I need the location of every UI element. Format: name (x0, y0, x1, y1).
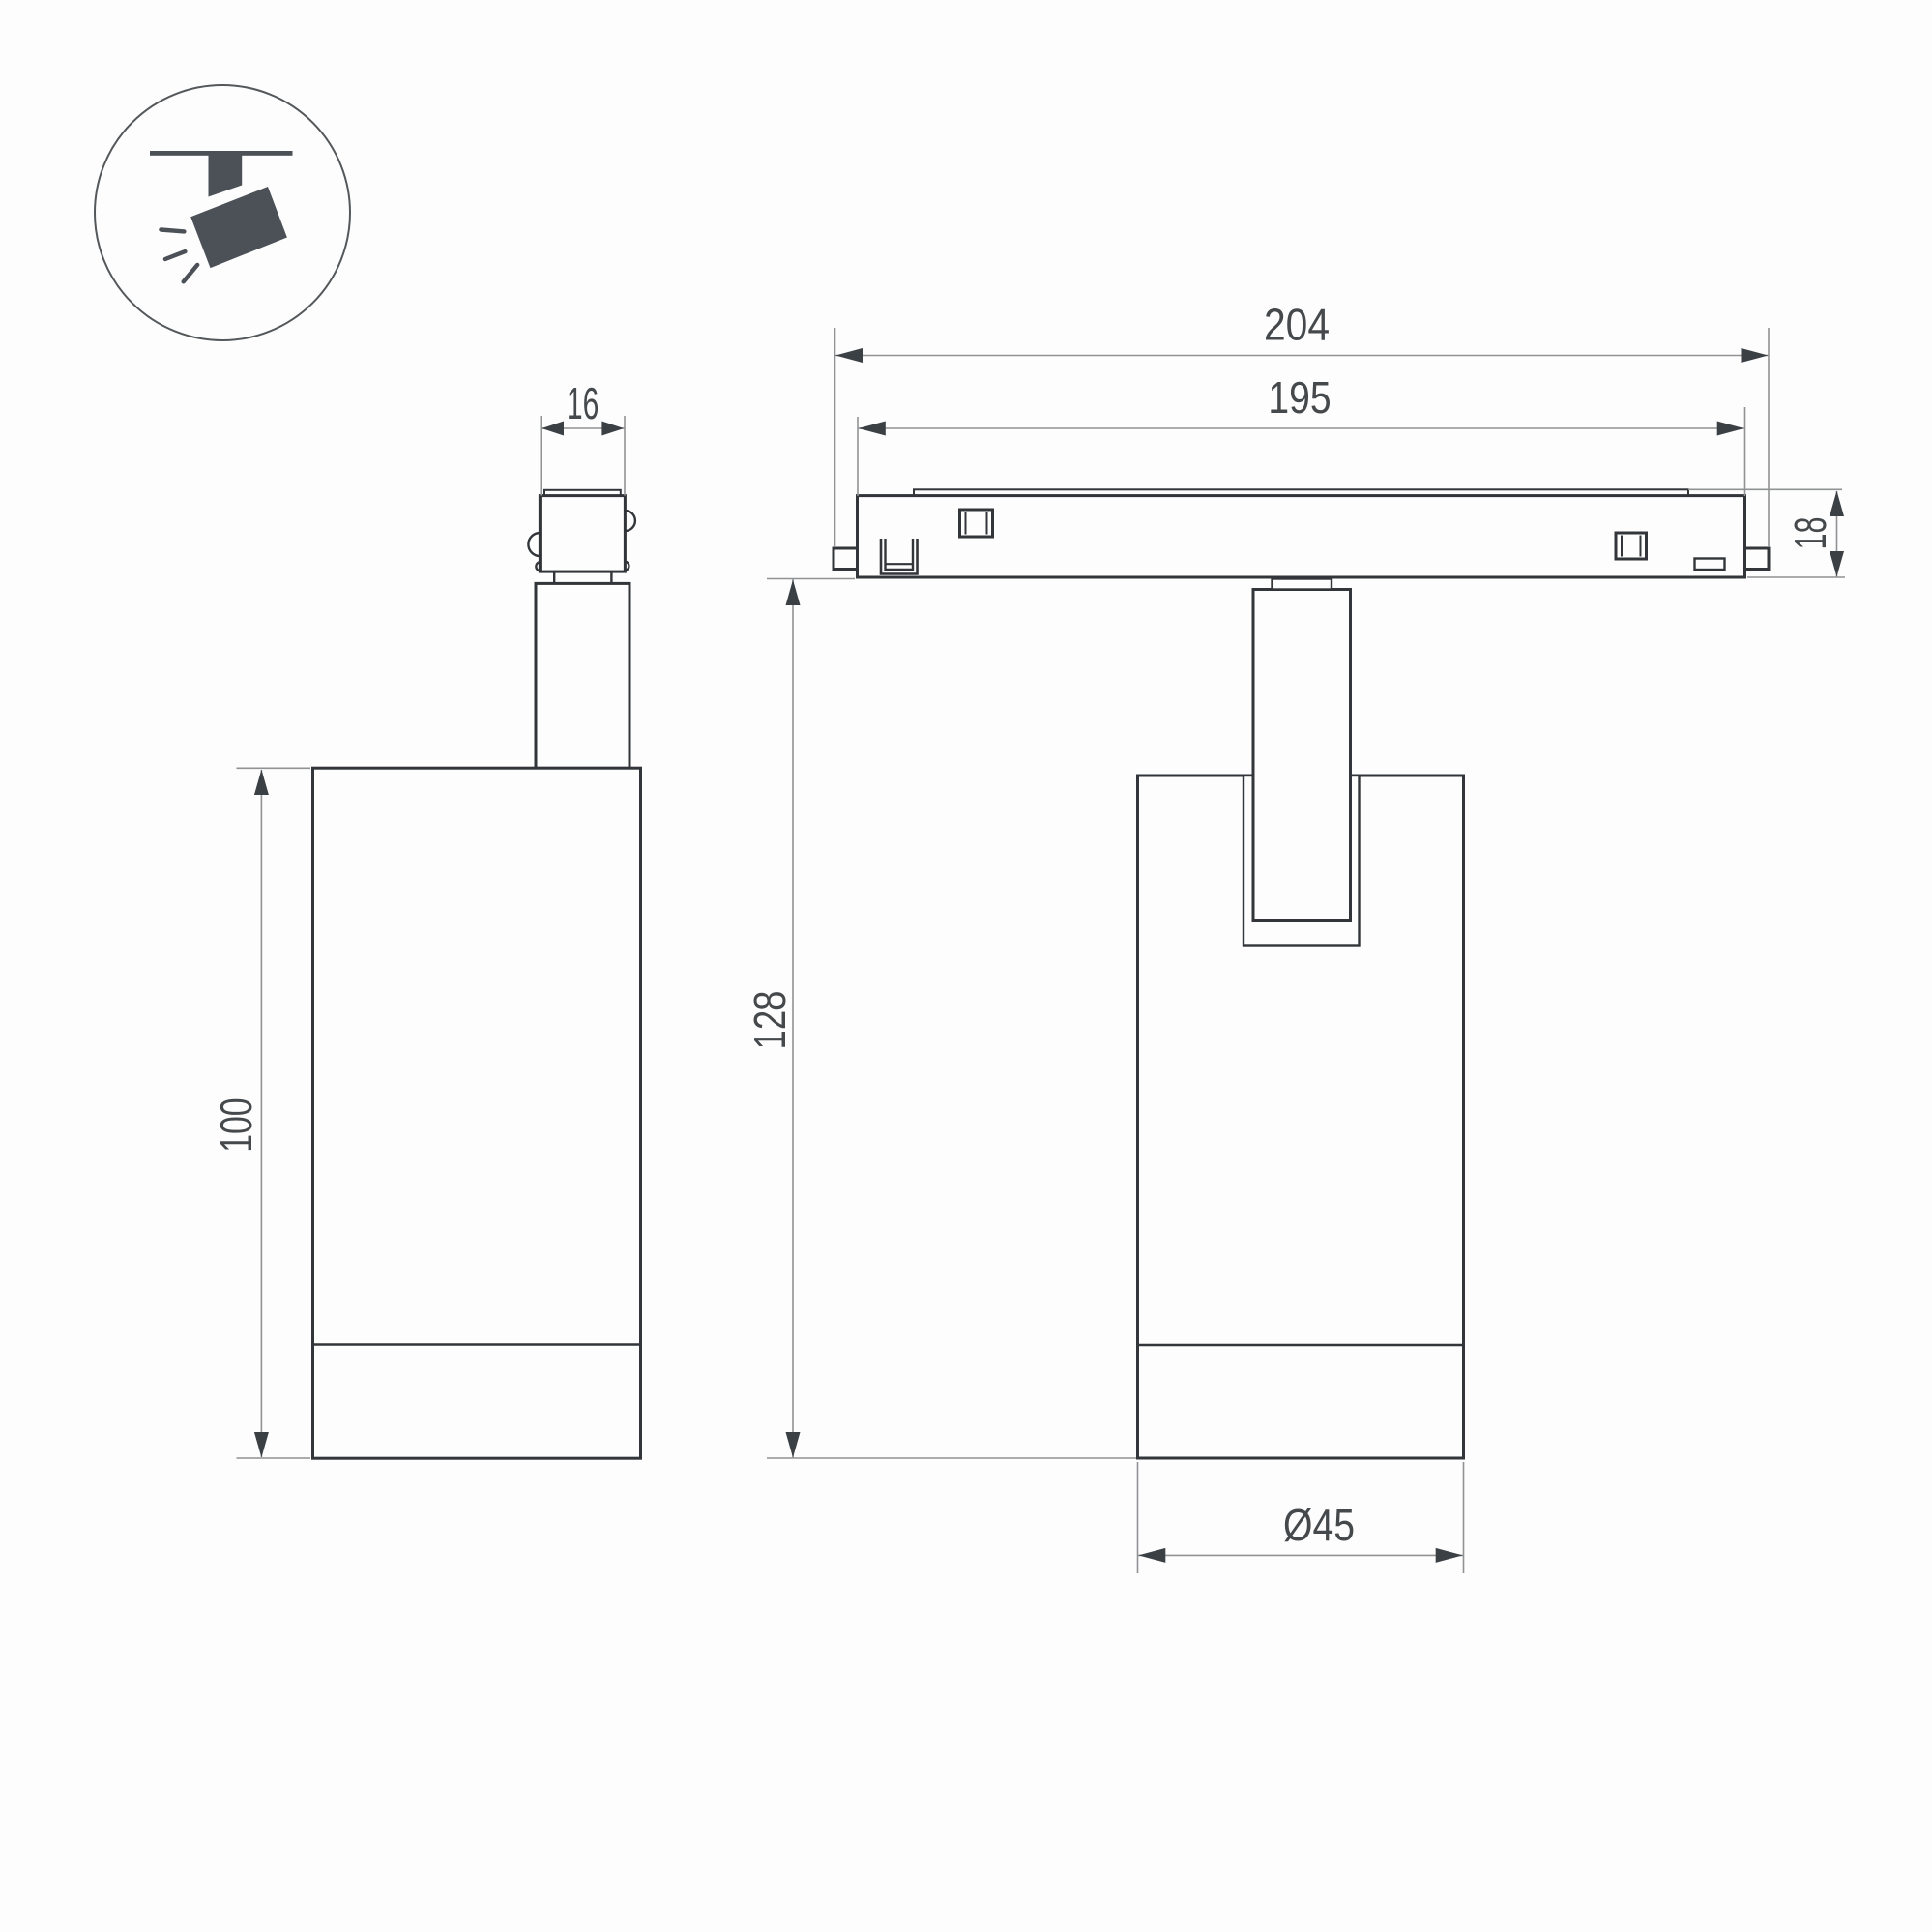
svg-text:204: 204 (1264, 299, 1330, 349)
svg-text:128: 128 (745, 991, 795, 1050)
svg-text:100: 100 (211, 1098, 261, 1152)
svg-text:18: 18 (1785, 517, 1835, 550)
svg-text:195: 195 (1268, 372, 1331, 423)
svg-text:Ø45: Ø45 (1283, 1500, 1355, 1550)
svg-text:16: 16 (567, 378, 600, 428)
